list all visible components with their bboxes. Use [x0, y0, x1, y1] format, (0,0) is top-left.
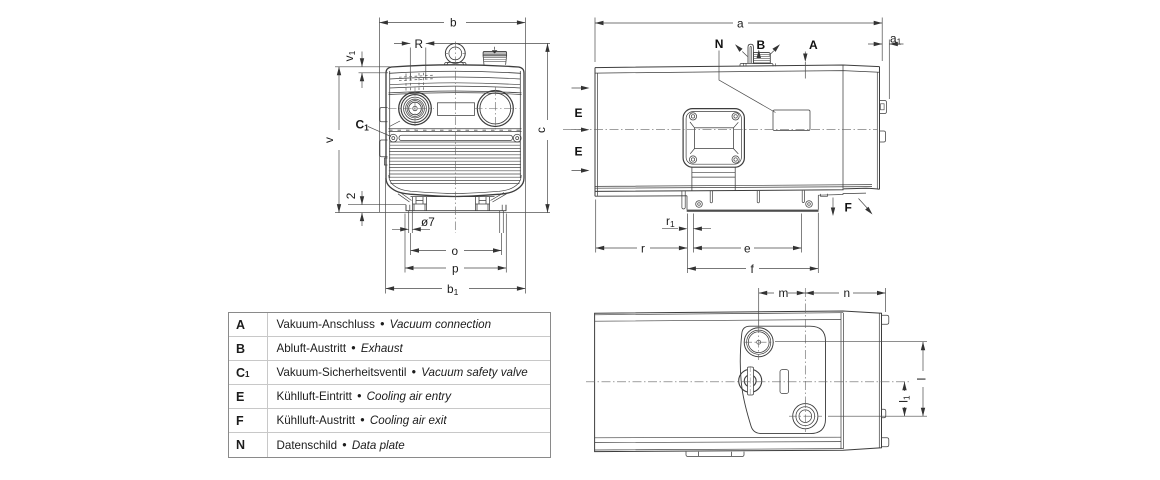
svg-text:l1: l1 — [897, 395, 912, 403]
svg-text:r: r — [641, 241, 645, 255]
svg-text:a1: a1 — [890, 32, 902, 47]
svg-text:e: e — [744, 241, 751, 255]
svg-text:l: l — [915, 378, 929, 381]
svg-text:ø7: ø7 — [421, 215, 435, 229]
svg-text:N: N — [715, 37, 724, 51]
svg-text:v: v — [322, 137, 336, 143]
svg-text:f: f — [751, 262, 755, 276]
svg-text:r1: r1 — [666, 214, 675, 229]
svg-text:p: p — [452, 262, 459, 276]
svg-text:o: o — [452, 244, 459, 258]
svg-text:n: n — [844, 286, 851, 300]
svg-text:v1: v1 — [342, 50, 357, 61]
svg-text:E: E — [575, 144, 583, 158]
svg-text:C1: C1 — [356, 118, 370, 133]
svg-text:F: F — [845, 200, 852, 214]
svg-text:E: E — [575, 106, 583, 120]
svg-text:A: A — [809, 38, 818, 52]
svg-text:R: R — [415, 37, 424, 51]
svg-text:m: m — [779, 286, 789, 300]
svg-text:2: 2 — [344, 193, 358, 200]
svg-text:b1: b1 — [447, 282, 459, 297]
svg-text:b: b — [450, 16, 457, 30]
svg-text:a: a — [737, 17, 744, 31]
svg-text:B: B — [757, 38, 766, 52]
svg-text:c: c — [534, 127, 548, 133]
